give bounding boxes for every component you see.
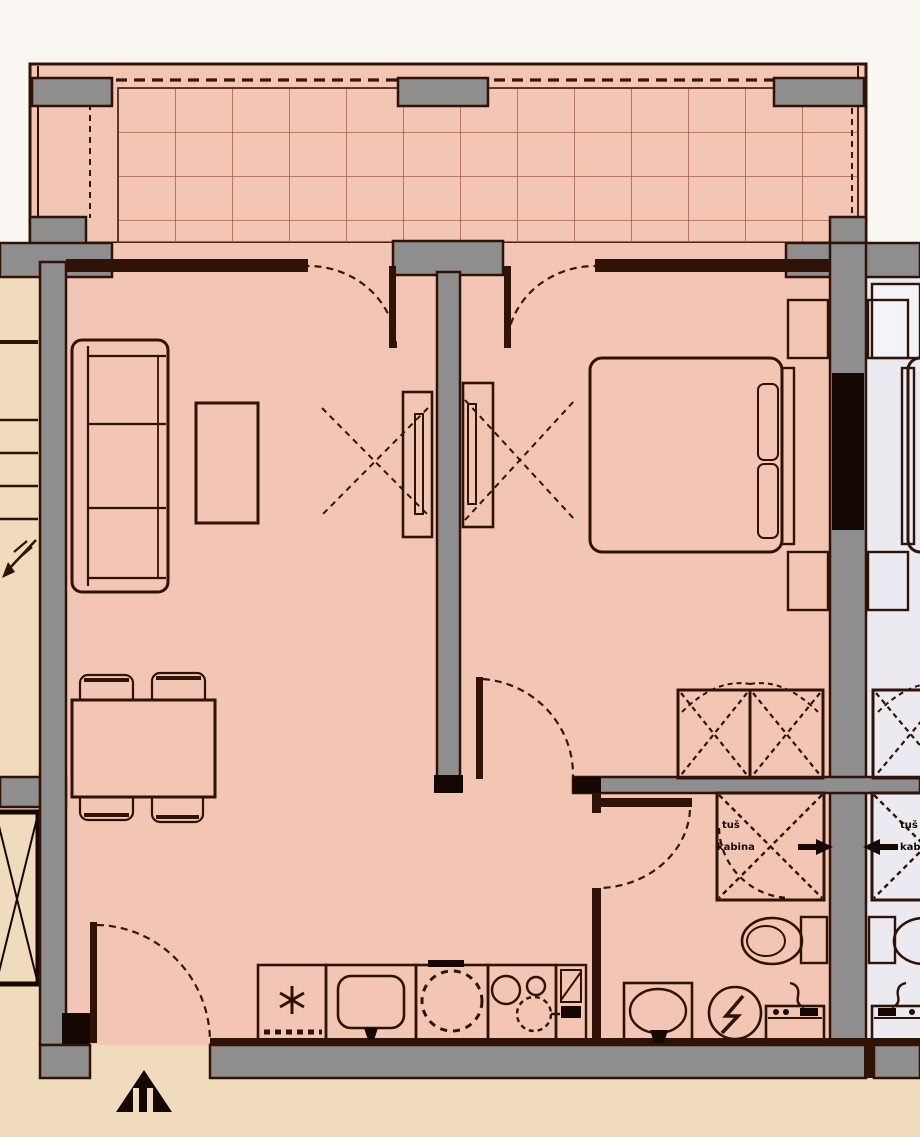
middle-wall-cap	[434, 775, 463, 793]
shower-label-line2: kabina	[717, 842, 755, 853]
terrace	[30, 64, 866, 243]
bathroom-north-wall-cap	[573, 777, 601, 793]
neighbor-closet	[872, 284, 920, 358]
white-top-right	[866, 0, 920, 243]
south-wall	[210, 1045, 866, 1078]
white-top-left	[0, 64, 30, 243]
oven-handle	[428, 960, 464, 967]
west-wall	[40, 262, 66, 1045]
elevator-shaft	[0, 812, 38, 984]
party-wall-dark-segment	[832, 373, 864, 530]
south-wall-left	[40, 1045, 90, 1078]
front-wall-middle-pier	[393, 241, 503, 275]
terrace-pier-left	[32, 78, 112, 106]
dining-table	[72, 700, 215, 797]
party-wall-east	[830, 243, 866, 1045]
bathroom-west-wall-lower	[592, 888, 601, 1045]
bedroom-north-wall	[595, 259, 830, 272]
floor-plan: tuš kabina	[0, 0, 920, 1137]
living-north-wall	[66, 259, 308, 272]
white-top-band	[0, 0, 920, 64]
terrace-tile-grid	[118, 88, 858, 243]
entry-jamb-block	[62, 1013, 90, 1047]
neighbor-shower-label-line1: tuš	[900, 819, 918, 831]
neighbor-south-wall	[874, 1045, 920, 1078]
neighbor-floor	[866, 277, 920, 1045]
shower-label-line1: tuš	[722, 819, 740, 831]
middle-wall	[437, 272, 460, 777]
terrace-pier-middle	[398, 78, 488, 106]
neighbor-shower-label-line2: kabina	[900, 842, 920, 853]
floor-plan-drawing: tuš kabina	[0, 0, 920, 1137]
terrace-pier-right	[774, 78, 864, 106]
